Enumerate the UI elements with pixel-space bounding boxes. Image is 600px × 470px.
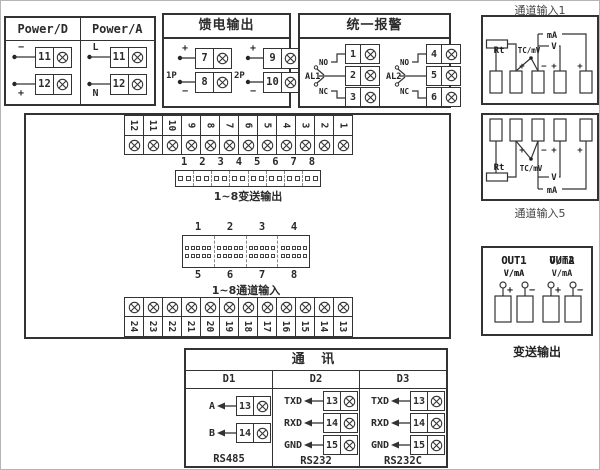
alarm-box: 统一报警 AL1 NO NC 1 2 3 <box>298 13 451 108</box>
screw-terminal <box>53 47 72 68</box>
comm-row: B 14 <box>187 423 271 443</box>
terminal-11[interactable]: 11 <box>144 115 163 155</box>
port-header: D2 <box>272 371 359 388</box>
screw-icon <box>364 69 377 82</box>
screw-terminal <box>427 413 445 433</box>
svg-text:Rt: Rt <box>494 46 505 56</box>
wire: − <box>177 71 195 93</box>
signal-label: GND <box>361 440 390 451</box>
terminal-7[interactable]: 7 <box>220 115 239 155</box>
screw-icon <box>131 51 144 64</box>
screw-terminal <box>53 74 72 95</box>
svg-text:+: + <box>551 146 557 156</box>
feed-row: + 7 <box>177 47 232 69</box>
terminal: 12 <box>110 74 147 95</box>
connector-number: 5 <box>248 156 266 168</box>
svg-text:V: V <box>551 173 557 183</box>
pin-group-4 <box>229 171 247 186</box>
connector-number: 5 <box>182 269 214 281</box>
comm-title: 通 讯 <box>186 350 446 371</box>
connector-number: 3 <box>212 156 230 168</box>
connector-number: 6 <box>214 269 246 281</box>
signal-label: RXD <box>361 418 390 429</box>
screw-icon <box>131 78 144 91</box>
power-d-row: + 12 <box>11 73 80 95</box>
screw-icon <box>223 301 236 314</box>
screw-icon <box>430 395 443 408</box>
terminal: 9 <box>263 48 300 69</box>
svg-text:NO: NO <box>400 58 410 67</box>
screw-icon <box>204 301 217 314</box>
screw-terminal <box>128 47 147 68</box>
comm-box: 通 讯 D1 D2 D3 A 13 B 14 RS485 <box>184 348 448 468</box>
comm-row: GND 15 <box>274 435 358 455</box>
signal-label: TXD <box>361 396 390 407</box>
svg-text:TC/mV: TC/mV <box>518 46 541 55</box>
svg-text:AL1: AL1 <box>305 72 320 82</box>
wire: L <box>86 46 110 68</box>
terminal: 11 <box>35 47 72 68</box>
screw-icon <box>216 52 229 65</box>
pin-group-2 <box>214 236 246 267</box>
terminal: 8 <box>195 72 232 93</box>
pin-group-7 <box>284 171 302 186</box>
terminal: 13 <box>410 391 445 411</box>
svg-text:OUT1: OUT1 <box>501 255 526 267</box>
power-d-title: Power/D <box>6 18 80 41</box>
screw-icon <box>364 91 377 104</box>
feed-group-1p: 1P + 7 − 8 <box>166 45 232 93</box>
terminal: 5 <box>426 66 461 86</box>
arrow-left-icon <box>216 423 236 443</box>
terminal-23[interactable]: 23 <box>144 297 163 337</box>
polarity-label: + <box>18 88 24 99</box>
screw-icon <box>280 139 293 152</box>
terminal: 14 <box>323 413 358 433</box>
signal-label: TXD <box>274 396 303 407</box>
signal-label: B <box>187 428 216 439</box>
terminal-board: 121110987654321 12345678 1~8变送输出 1234 56… <box>24 113 451 339</box>
screw-terminal <box>340 413 358 433</box>
screw-icon <box>242 139 255 152</box>
svg-text:TC/mV: TC/mV <box>520 164 543 173</box>
alarm-relay-1: AL1 NO NC 1 2 3 <box>305 44 380 110</box>
group-label: 1P <box>166 71 177 81</box>
screw-icon <box>147 139 160 152</box>
screw-terminal <box>360 66 380 86</box>
polarity-label: − <box>182 86 188 97</box>
terminal-1[interactable]: 1 <box>334 115 353 155</box>
terminal: 4 <box>426 44 461 64</box>
feed-row: − 10 <box>245 71 300 93</box>
terminal-21[interactable]: 21 <box>182 297 201 337</box>
screw-icon <box>256 400 269 413</box>
terminal-20[interactable]: 20 <box>201 297 220 337</box>
screw-icon <box>337 139 350 152</box>
screw-terminal <box>427 391 445 411</box>
channel-connector-bottom-numbers: 5678 <box>182 269 310 281</box>
connector-number: 2 <box>214 221 246 233</box>
transmit-output-label: 变送输出 <box>481 343 593 360</box>
terminal-22[interactable]: 22 <box>163 297 182 337</box>
feed-row: − 8 <box>177 71 232 93</box>
terminal-8[interactable]: 8 <box>201 115 220 155</box>
wire: + <box>11 73 35 95</box>
screw-terminal <box>340 435 358 455</box>
screw-terminal <box>340 391 358 411</box>
screw-icon <box>430 439 443 452</box>
connector-number: 2 <box>193 156 211 168</box>
power-a-title: Power/A <box>81 18 155 41</box>
transmit-output-box: OUT1 V/mA V/mA + − + − V/mA OUT2 OUT1 V/… <box>481 246 593 336</box>
pin-group-8 <box>302 171 320 186</box>
terminal: 2 <box>345 66 380 86</box>
transmit-connector-pins[interactable] <box>175 170 321 187</box>
comm-row: RXD 14 <box>274 413 358 433</box>
svg-text:mA: mA <box>547 31 557 41</box>
channel-input-5-label: 通道输入5 <box>481 205 599 221</box>
screw-terminal <box>213 72 232 93</box>
polarity-label: N <box>93 88 99 99</box>
screw-icon <box>343 417 356 430</box>
wiring-diagram: Power/D − 11 + 12 Power/A <box>0 0 600 470</box>
screw-icon <box>261 301 274 314</box>
arrow-left-icon <box>303 435 323 455</box>
connector-number: 4 <box>278 221 310 233</box>
svg-text:OUT2: OUT2 <box>549 255 574 267</box>
feed-row: + 9 <box>245 47 300 69</box>
terminal-6[interactable]: 6 <box>239 115 258 155</box>
comm-row: RXD 14 <box>361 413 445 433</box>
power-d-row: − 11 <box>11 46 80 68</box>
signal-label: RXD <box>274 418 303 429</box>
svg-text:V: V <box>551 42 557 52</box>
polarity-label: + <box>182 43 188 54</box>
screw-icon <box>56 51 69 64</box>
screw-icon <box>337 301 350 314</box>
svg-text:+: + <box>507 285 513 296</box>
screw-icon <box>256 427 269 440</box>
wire: − <box>11 46 35 68</box>
bottom-terminal-strip: 242322212019181716151413 <box>125 297 353 337</box>
comm-standard: RS232C <box>384 455 422 467</box>
comm-standard: RS485 <box>213 453 245 465</box>
screw-icon <box>128 301 141 314</box>
terminal-15[interactable]: 15 <box>296 297 315 337</box>
feed-output-box: 馈电输出 1P + 7 − 8 <box>162 13 291 108</box>
svg-text:+: + <box>577 146 583 156</box>
screw-icon <box>299 139 312 152</box>
wire: N <box>86 73 110 95</box>
svg-text:NC: NC <box>319 87 328 96</box>
feed-group-2p: 2P + 9 − 10 <box>234 45 300 93</box>
wire: + <box>245 47 263 69</box>
power-a-row: L 11 <box>86 46 155 68</box>
channel-input-1-box: Rt TC/mV V mA + − + + <box>481 15 599 105</box>
screw-icon <box>242 301 255 314</box>
port-header: D3 <box>359 371 446 388</box>
screw-icon <box>445 48 458 61</box>
power-a-row: N 12 <box>86 73 155 95</box>
pin-group-3 <box>211 171 229 186</box>
port-header: D1 <box>186 371 272 388</box>
channel-connector-pins[interactable] <box>182 235 310 268</box>
screw-icon <box>56 78 69 91</box>
screw-terminal <box>360 44 380 64</box>
pin-group-5 <box>248 171 266 186</box>
screw-icon <box>216 76 229 89</box>
polarity-label: − <box>250 86 256 97</box>
transmit-output-wiring: OUT1 V/mA V/mA + − + − V/mA OUT2 OUT1 V/… <box>483 248 591 334</box>
terminal: 14 <box>236 423 271 443</box>
pin-group-1 <box>183 236 214 267</box>
terminal: 6 <box>426 87 461 107</box>
screw-icon <box>445 91 458 104</box>
connector-number: 3 <box>246 221 278 233</box>
arrow-left-icon <box>390 413 410 433</box>
screw-terminal <box>441 66 461 86</box>
screw-icon <box>318 139 331 152</box>
terminal: 13 <box>323 391 358 411</box>
comm-column-d2: TXD 13 RXD 14 GND 15 RS232 <box>272 389 359 466</box>
terminal: 15 <box>323 435 358 455</box>
connector-number: 1 <box>175 156 193 168</box>
screw-icon <box>166 301 179 314</box>
alarm-relay-2: AL2 NO NC 4 5 6 <box>386 44 461 110</box>
terminal: 1 <box>345 44 380 64</box>
feed-output-title: 馈电输出 <box>164 15 289 39</box>
connector-number: 7 <box>285 156 303 168</box>
pin-group-6 <box>266 171 284 186</box>
top-terminal-strip: 121110987654321 <box>125 115 353 155</box>
terminal-3[interactable]: 3 <box>296 115 315 155</box>
screw-terminal <box>253 396 271 416</box>
screw-icon <box>284 52 297 65</box>
svg-text:−: − <box>529 285 535 296</box>
screw-terminal <box>441 44 461 64</box>
screw-icon <box>284 76 297 89</box>
screw-icon <box>318 301 331 314</box>
terminal-13[interactable]: 13 <box>334 297 353 337</box>
svg-text:V/mA: V/mA <box>552 269 572 279</box>
channel-connector-label: 1~8通道输入 <box>172 282 320 298</box>
comm-standard: RS232 <box>300 455 332 467</box>
screw-icon <box>204 139 217 152</box>
svg-text:Rt: Rt <box>494 163 505 173</box>
polarity-label: + <box>250 43 256 54</box>
svg-text:−: − <box>577 285 583 296</box>
group-label: 2P <box>234 71 245 81</box>
screw-icon <box>364 48 377 61</box>
screw-icon <box>261 139 274 152</box>
signal-label: A <box>187 401 216 412</box>
svg-text:mA: mA <box>547 186 557 196</box>
pin-group-1 <box>176 171 193 186</box>
screw-icon <box>128 139 141 152</box>
connector-number: 8 <box>303 156 321 168</box>
svg-text:NC: NC <box>400 87 409 96</box>
svg-text:−: − <box>541 146 547 156</box>
pin-group-3 <box>246 236 278 267</box>
connector-number: 6 <box>266 156 284 168</box>
comm-column-d1: A 13 B 14 RS485 <box>186 389 272 466</box>
terminal: 13 <box>236 396 271 416</box>
terminal: 11 <box>110 47 147 68</box>
screw-icon <box>445 69 458 82</box>
arrow-left-icon <box>390 391 410 411</box>
terminal: 12 <box>35 74 72 95</box>
terminal: 14 <box>410 413 445 433</box>
screw-terminal <box>128 74 147 95</box>
svg-text:NO: NO <box>319 58 329 67</box>
terminal: 10 <box>263 72 300 93</box>
terminal-18[interactable]: 18 <box>239 297 258 337</box>
terminal: 3 <box>345 87 380 107</box>
screw-icon <box>343 395 356 408</box>
channel-connector-top-numbers: 1234 <box>182 221 310 233</box>
svg-text:V/mA: V/mA <box>504 269 524 279</box>
wire: − <box>245 71 263 93</box>
terminal-10[interactable]: 10 <box>163 115 182 155</box>
polarity-label: L <box>93 42 99 53</box>
spdt-switch-icon: AL2 NO NC <box>386 44 426 110</box>
screw-icon <box>223 139 236 152</box>
screw-icon <box>299 301 312 314</box>
screw-terminal <box>427 435 445 455</box>
connector-number: 7 <box>246 269 278 281</box>
terminal-17[interactable]: 17 <box>258 297 277 337</box>
connector-number: 1 <box>182 221 214 233</box>
arrow-left-icon <box>303 413 323 433</box>
transmit-connector-numbers: 12345678 <box>175 156 321 168</box>
channel-input-1-wiring: Rt TC/mV V mA + − + + <box>483 17 597 103</box>
terminal: 15 <box>410 435 445 455</box>
alarm-title: 统一报警 <box>300 15 449 39</box>
wire: + <box>177 47 195 69</box>
power-d-section: Power/D − 11 + 12 <box>6 18 80 104</box>
power-box: Power/D − 11 + 12 Power/A <box>4 16 156 106</box>
screw-terminal <box>441 87 461 107</box>
screw-icon <box>185 301 198 314</box>
polarity-label: − <box>18 42 24 53</box>
terminal-5[interactable]: 5 <box>258 115 277 155</box>
screw-icon <box>166 139 179 152</box>
channel-input-5-wiring: + − + + Rt TC/mV V mA <box>483 115 597 199</box>
terminal-9[interactable]: 9 <box>182 115 201 155</box>
comm-row: TXD 13 <box>361 391 445 411</box>
comm-column-d3: TXD 13 RXD 14 GND 15 RS232C <box>359 389 446 466</box>
transmit-connector-label: 1~8变送输出 <box>155 188 341 204</box>
terminal-2[interactable]: 2 <box>315 115 334 155</box>
comm-row: TXD 13 <box>274 391 358 411</box>
arrow-left-icon <box>390 435 410 455</box>
spdt-switch-icon: AL1 NO NC <box>305 44 345 110</box>
signal-label: GND <box>274 440 303 451</box>
svg-text:AL2: AL2 <box>386 72 401 82</box>
screw-terminal <box>213 48 232 69</box>
connector-number: 8 <box>278 269 310 281</box>
terminal-14[interactable]: 14 <box>315 297 334 337</box>
screw-terminal <box>253 423 271 443</box>
connector-number: 4 <box>230 156 248 168</box>
screw-icon <box>147 301 160 314</box>
screw-icon <box>280 301 293 314</box>
arrow-left-icon <box>303 391 323 411</box>
terminal-16[interactable]: 16 <box>277 297 296 337</box>
svg-text:+: + <box>555 285 561 296</box>
terminal-19[interactable]: 19 <box>220 297 239 337</box>
terminal-4[interactable]: 4 <box>277 115 296 155</box>
pin-group-2 <box>193 171 211 186</box>
power-a-section: Power/A L 11 N 12 <box>80 18 155 104</box>
comm-row: GND 15 <box>361 435 445 455</box>
pin-group-4 <box>277 236 309 267</box>
comm-port-headers: D1 D2 D3 <box>186 371 446 389</box>
screw-icon <box>430 417 443 430</box>
terminal-24[interactable]: 24 <box>125 297 144 337</box>
channel-input-5-box: + − + + Rt TC/mV V mA <box>481 113 599 201</box>
terminal: 7 <box>195 48 232 69</box>
comm-row: A 13 <box>187 396 271 416</box>
screw-icon <box>343 439 356 452</box>
arrow-left-icon <box>216 396 236 416</box>
screw-terminal <box>360 87 380 107</box>
terminal-12[interactable]: 12 <box>125 115 144 155</box>
screw-icon <box>185 139 198 152</box>
